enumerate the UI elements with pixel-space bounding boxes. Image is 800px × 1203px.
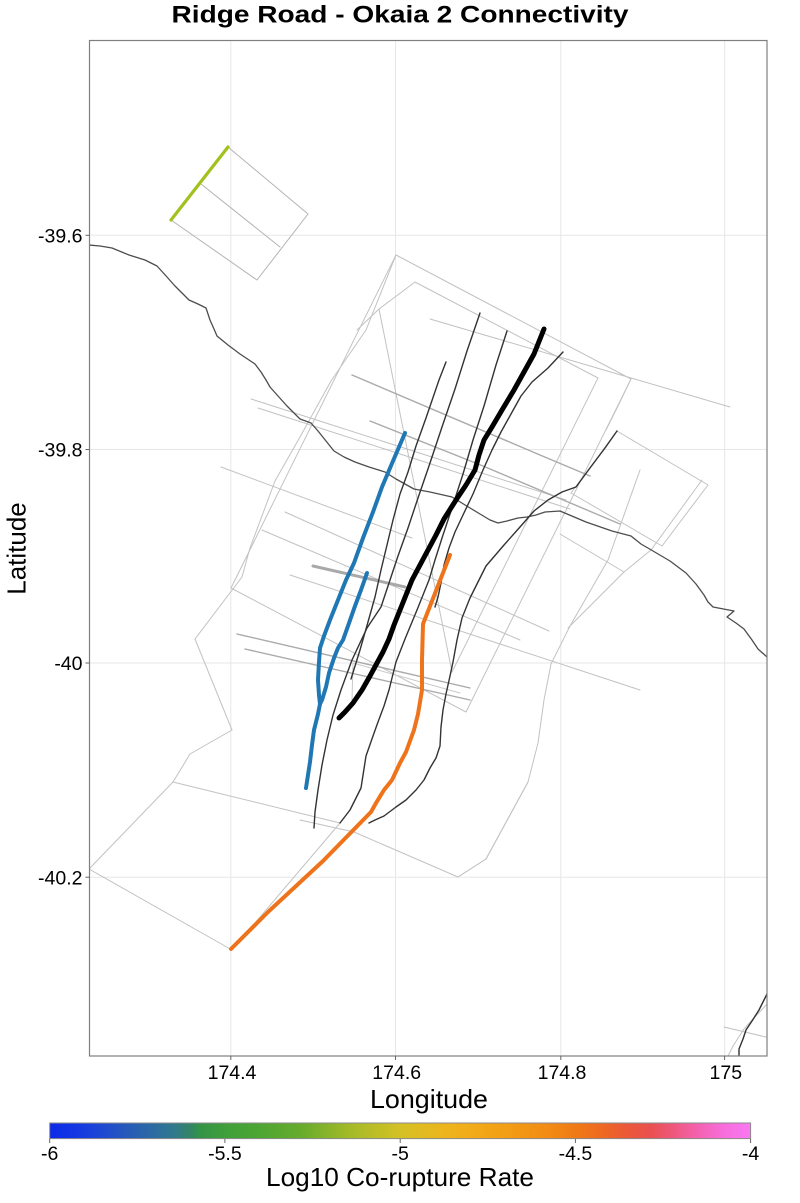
svg-text:Latitude: Latitude <box>2 502 32 595</box>
svg-text:Log10 Co-rupture Rate: Log10 Co-rupture Rate <box>266 1162 534 1192</box>
svg-text:174.8: 174.8 <box>538 1062 587 1084</box>
svg-text:-39.8: -39.8 <box>38 440 82 462</box>
svg-text:175: 175 <box>710 1062 743 1084</box>
svg-text:174.4: 174.4 <box>208 1062 257 1084</box>
svg-text:Longitude: Longitude <box>370 1084 488 1114</box>
svg-text:-5.5: -5.5 <box>208 1143 242 1165</box>
svg-text:-40: -40 <box>54 653 82 675</box>
svg-text:-4.5: -4.5 <box>559 1143 593 1165</box>
svg-text:-40.2: -40.2 <box>38 867 82 889</box>
svg-text:-39.6: -39.6 <box>38 225 82 247</box>
svg-text:-4: -4 <box>742 1143 759 1165</box>
svg-text:Ridge Road - Okaia 2 Connectiv: Ridge Road - Okaia 2 Connectivity <box>172 2 630 29</box>
svg-text:174.6: 174.6 <box>372 1062 421 1084</box>
svg-text:-6: -6 <box>41 1143 58 1165</box>
